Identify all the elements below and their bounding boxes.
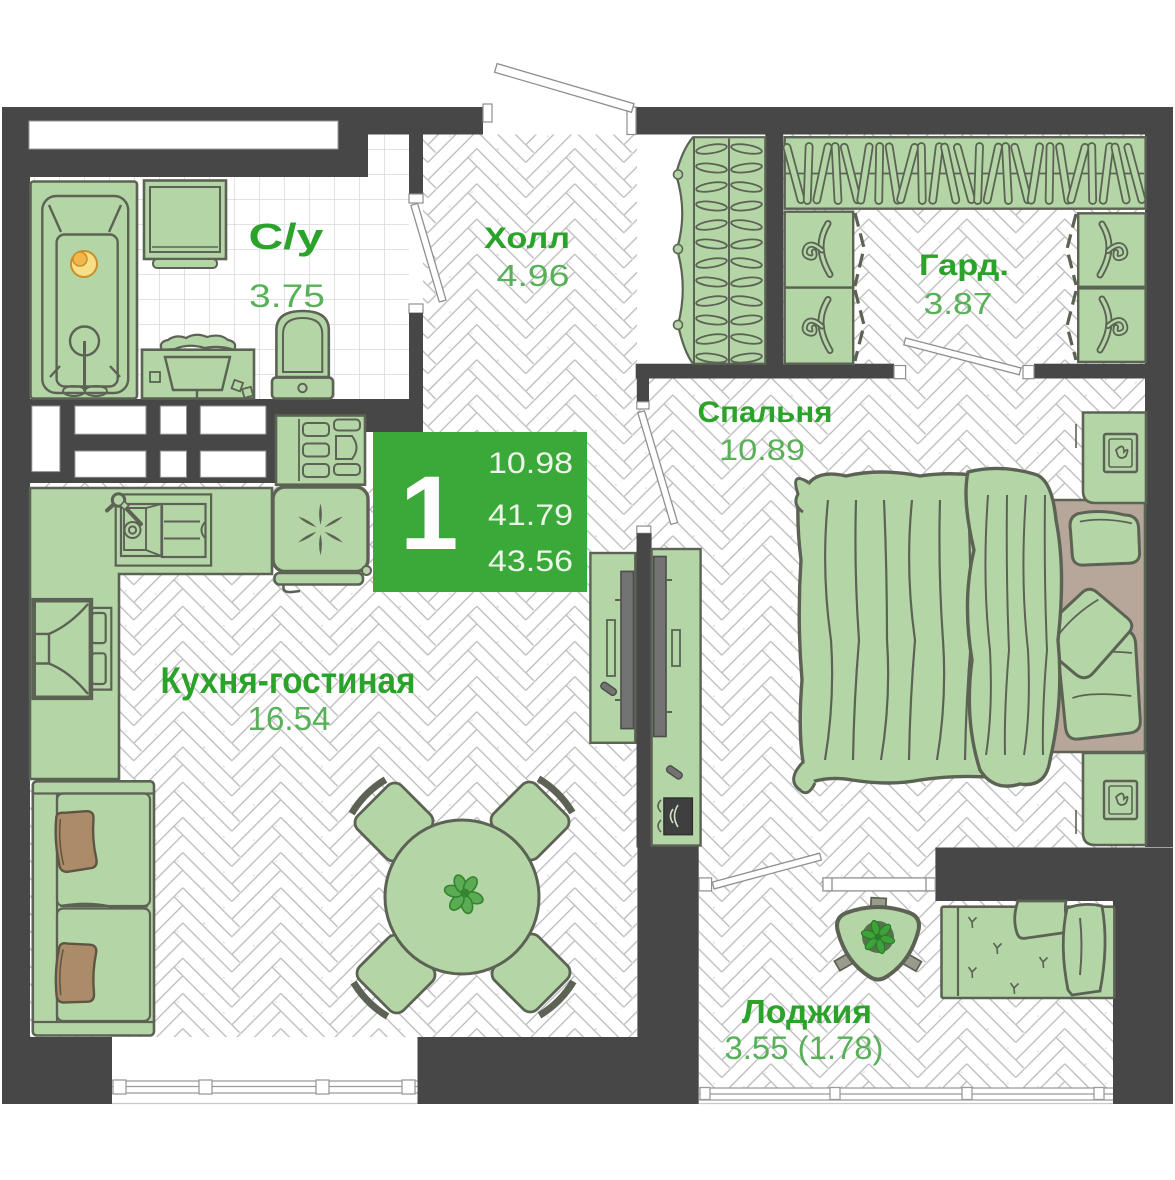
svg-text:Лоджия: Лоджия bbox=[742, 993, 872, 1030]
svg-text:Спальня: Спальня bbox=[698, 396, 833, 429]
svg-text:3.75: 3.75 bbox=[249, 278, 325, 314]
svg-text:16.54: 16.54 bbox=[248, 700, 331, 737]
svg-text:3.87: 3.87 bbox=[924, 286, 993, 321]
svg-text:4.96: 4.96 bbox=[497, 258, 570, 293]
svg-text:3.55 (1.78): 3.55 (1.78) bbox=[725, 1030, 884, 1066]
svg-text:С/у: С/у bbox=[249, 216, 324, 257]
svg-text:43.56: 43.56 bbox=[488, 545, 573, 578]
svg-text:10.89: 10.89 bbox=[719, 434, 805, 467]
svg-text:1: 1 bbox=[400, 455, 458, 572]
svg-text:10.98: 10.98 bbox=[488, 447, 573, 480]
svg-text:Холл: Холл bbox=[484, 222, 570, 255]
svg-text:41.79: 41.79 bbox=[488, 499, 573, 532]
svg-text:Гард.: Гард. bbox=[919, 249, 1009, 282]
svg-text:Кухня-гостиная: Кухня-гостиная bbox=[161, 660, 416, 701]
